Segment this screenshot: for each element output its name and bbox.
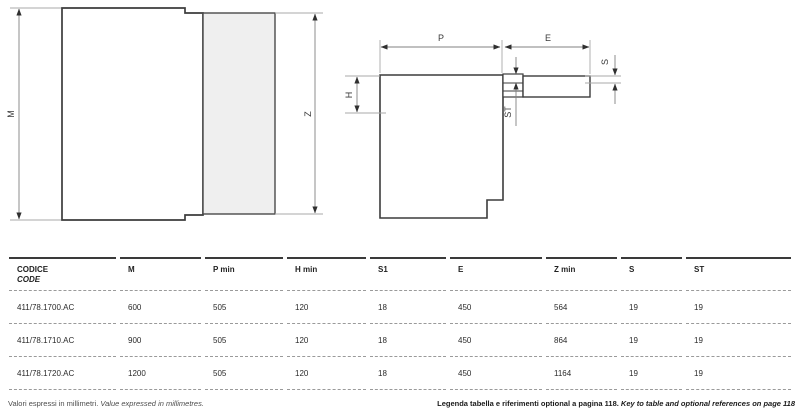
left-body-outline <box>62 8 203 220</box>
units-note: Valori espressi in millimetri. Value exp… <box>8 399 204 408</box>
col-header-codice-it: CODICE <box>17 265 48 274</box>
dim-label-st: ST <box>503 106 513 118</box>
cell-pmin: 505 <box>205 324 283 357</box>
cell-st: 19 <box>686 324 791 357</box>
cell-st: 19 <box>686 357 791 390</box>
col-header-hmin: H min <box>287 257 366 291</box>
technical-drawing-left: M Z <box>6 8 323 220</box>
cell-code: 411/78.1720.AC <box>9 357 116 390</box>
catalog-page: M Z P E <box>0 0 800 417</box>
col-header-m: M <box>120 257 201 291</box>
technical-drawings: M Z P E <box>0 0 800 254</box>
col-header-e: E <box>450 257 542 291</box>
units-note-en: Value expressed in millimetres. <box>100 399 204 408</box>
table-row: 411/78.1700.AC 600 505 120 18 450 564 19… <box>9 291 791 324</box>
cell-s1: 18 <box>370 291 446 324</box>
cell-s: 19 <box>621 291 682 324</box>
cell-zmin: 1164 <box>546 357 617 390</box>
cell-m: 900 <box>120 324 201 357</box>
col-header-st: ST <box>686 257 791 291</box>
col-header-s: S <box>621 257 682 291</box>
cell-m: 1200 <box>120 357 201 390</box>
cell-e: 450 <box>450 324 542 357</box>
units-note-it: Valori espressi in millimetri. <box>8 399 98 408</box>
tongue-outline <box>503 74 523 97</box>
col-header-pmin: P min <box>205 257 283 291</box>
cell-e: 450 <box>450 357 542 390</box>
col-header-zmin: Z min <box>546 257 617 291</box>
col-header-s1: S1 <box>370 257 446 291</box>
header-row: CODICE CODE M P min H min S1 E Z min S S… <box>9 257 791 291</box>
cell-s1: 18 <box>370 324 446 357</box>
dim-label-s: S <box>600 59 610 65</box>
left-gray-panel <box>203 13 275 214</box>
table-row: 411/78.1720.AC 1200 505 120 18 450 1164 … <box>9 357 791 390</box>
technical-drawing-right: P E H ST S <box>344 33 621 218</box>
cell-zmin: 864 <box>546 324 617 357</box>
cell-s: 19 <box>621 324 682 357</box>
col-header-codice: CODICE CODE <box>9 257 116 291</box>
cell-e: 450 <box>450 291 542 324</box>
legend-note: Legenda tabella e riferimenti optional a… <box>437 399 795 408</box>
dim-label-z: Z <box>303 111 313 117</box>
dimensions-table: CODICE CODE M P min H min S1 E Z min S S… <box>5 257 795 390</box>
cell-s1: 18 <box>370 357 446 390</box>
cell-m: 600 <box>120 291 201 324</box>
cell-code: 411/78.1700.AC <box>9 291 116 324</box>
cell-zmin: 564 <box>546 291 617 324</box>
beam-outline <box>523 76 590 97</box>
dim-label-h: H <box>344 92 354 99</box>
cell-s: 19 <box>621 357 682 390</box>
cell-pmin: 505 <box>205 291 283 324</box>
cell-hmin: 120 <box>287 291 366 324</box>
cell-hmin: 120 <box>287 324 366 357</box>
table-row: 411/78.1710.AC 900 505 120 18 450 864 19… <box>9 324 791 357</box>
cell-hmin: 120 <box>287 357 366 390</box>
legend-note-en: Key to table and optional references on … <box>621 399 795 408</box>
legend-note-it: Legenda tabella e riferimenti optional a… <box>437 399 619 408</box>
dim-label-m: M <box>6 110 16 118</box>
cell-pmin: 505 <box>205 357 283 390</box>
right-body-outline <box>380 75 503 218</box>
cell-st: 19 <box>686 291 791 324</box>
cell-code: 411/78.1710.AC <box>9 324 116 357</box>
dim-label-p: P <box>438 33 444 43</box>
col-header-codice-en: CODE <box>17 275 114 284</box>
dim-label-e: E <box>545 33 551 43</box>
